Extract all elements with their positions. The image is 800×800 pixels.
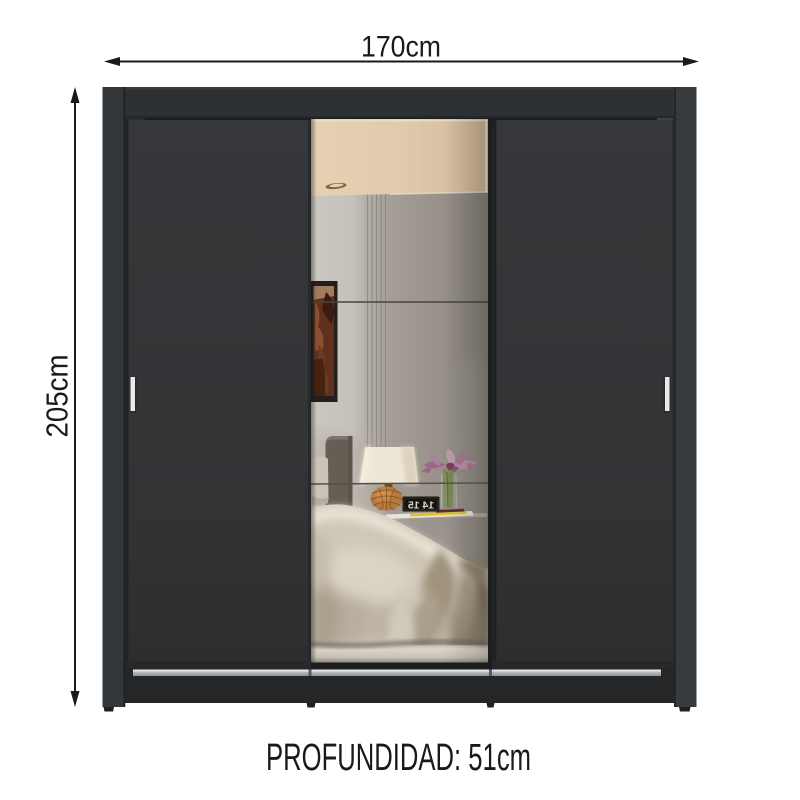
svg-text:PROFUNDIDAD: 51cm: PROFUNDIDAD: 51cm [266,737,531,779]
svg-text:205cm: 205cm [41,355,75,438]
svg-text:170cm: 170cm [361,31,441,64]
